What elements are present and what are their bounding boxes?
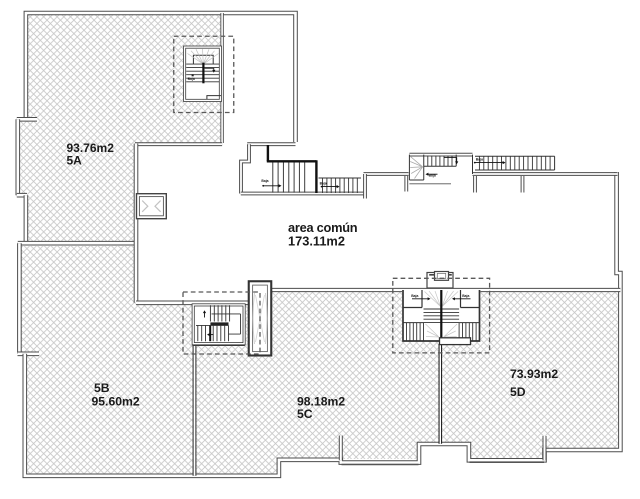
svg-text:73.93m2: 73.93m2: [510, 367, 558, 381]
svg-text:5A: 5A: [67, 154, 83, 168]
svg-text:Baja: Baja: [320, 182, 327, 186]
svg-text:Baja: Baja: [411, 294, 418, 298]
svg-text:5C: 5C: [297, 407, 313, 421]
svg-text:173.11m2: 173.11m2: [288, 234, 345, 249]
svg-text:5B: 5B: [94, 381, 110, 395]
svg-text:Baja: Baja: [476, 157, 483, 161]
svg-text:Baja: Baja: [261, 179, 268, 183]
svg-text:95.60m2: 95.60m2: [92, 395, 140, 409]
svg-text:Baja: Baja: [462, 294, 469, 298]
svg-text:Baja: Baja: [188, 77, 195, 81]
svg-text:5D: 5D: [510, 385, 526, 399]
